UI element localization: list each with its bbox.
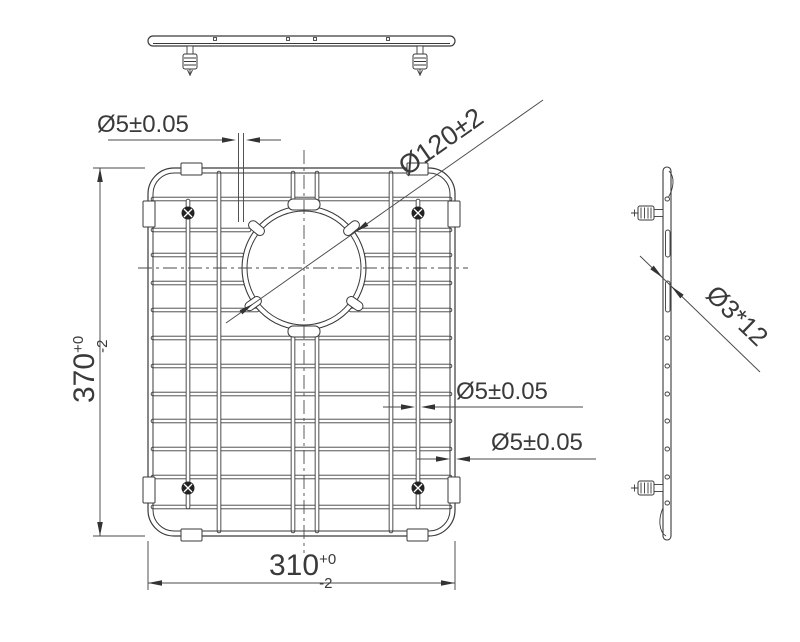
side-view-foot-upper (631, 206, 663, 220)
sink-grid-technical-drawing: Ø120±2 Ø5±0.05 Ø5±0.05 Ø5±0.05 370+0-2 (0, 0, 800, 642)
top-view-foot-left (183, 46, 197, 76)
wire-mid-label: Ø5±0.05 (456, 378, 548, 405)
top-view (148, 36, 455, 76)
top-view-bar (148, 36, 455, 46)
front-view (138, 150, 468, 553)
wire-top-label: Ø5±0.05 (97, 111, 189, 138)
callout-wire-frame: Ø5±0.05 (417, 429, 596, 462)
wire-frame-label: Ø5±0.05 (491, 429, 583, 456)
callout-hole-diameter: Ø120±2 (226, 100, 543, 323)
callout-side-feet: Ø3*12 (640, 256, 774, 372)
engineering-drawing-sheet: Ø120±2 Ø5±0.05 Ø5±0.05 Ø5±0.05 370+0-2 (0, 0, 800, 642)
top-view-foot-right (413, 46, 427, 76)
side-view-bar (663, 167, 671, 540)
dimension-width: 310+0-2 (148, 541, 455, 592)
side-view: Ø3*12 (631, 167, 774, 540)
hole-diameter-label: Ø120±2 (393, 102, 489, 182)
width-dim-text: 310+0-2 (269, 549, 336, 592)
side-view-foot-lower (631, 481, 663, 495)
dimension-height: 370+0-2 (68, 168, 145, 536)
side-feet-label: Ø3*12 (700, 279, 774, 352)
height-dim-text: 370+0-2 (68, 336, 111, 403)
